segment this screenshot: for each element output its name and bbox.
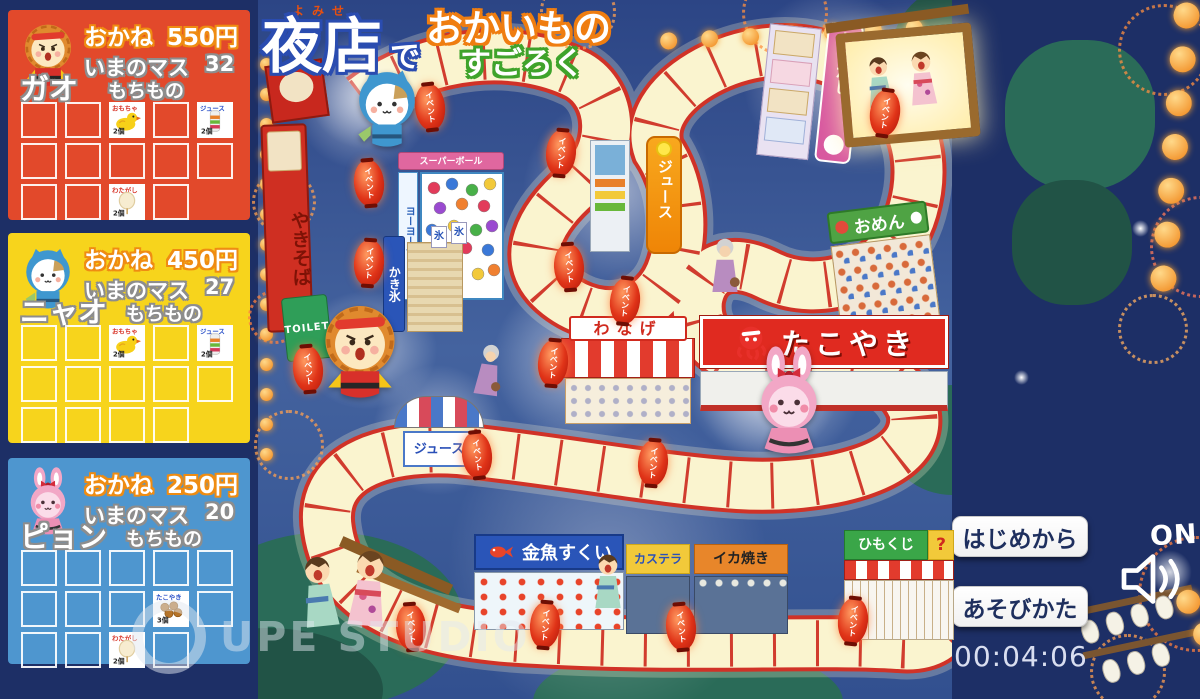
item-slot: [153, 143, 189, 179]
yukata-kid: [336, 542, 400, 643]
item-slot: [21, 632, 57, 668]
money-label: おかね: [84, 241, 153, 275]
red-mask-icon: [834, 220, 848, 234]
item-slot: [65, 366, 101, 402]
item-slot: [21, 591, 57, 627]
item-slot: [65, 407, 101, 443]
ice-flag: 氷: [451, 222, 467, 244]
belongings-grid: おもちゃ 2個 ジュース 2個: [21, 325, 233, 443]
kakigori-body: [407, 242, 463, 332]
restart-button[interactable]: はじめから: [952, 516, 1088, 557]
item-slot: [109, 550, 145, 586]
timer: 00:04:06: [954, 640, 1088, 673]
item-card-takoyaki: たこやき 3個: [153, 591, 189, 627]
speaker-icon: [1118, 550, 1188, 608]
item-slot: [21, 550, 57, 586]
yakisoba-photo: [267, 130, 302, 171]
square-value: 27: [205, 275, 234, 305]
item-slot: [197, 143, 233, 179]
player-panel-gao: おかね 550円 いまのマス 32 ガオ もちもの おもちゃ 2個 ジュース 2…: [8, 10, 250, 220]
stall-sign-omen: おめん: [852, 207, 906, 238]
ikayaki-body: [694, 576, 788, 634]
stall-sign-ikayaki: イカ焼き: [694, 544, 788, 574]
side-panel: はじめから あそびかた ON 00:04:06: [950, 0, 1200, 699]
item-slot: [153, 550, 189, 586]
square-value: 20: [205, 500, 234, 530]
yukata-kid: [588, 548, 628, 620]
item-card-juice: ジュース 2個: [197, 102, 233, 138]
item-slot: [65, 325, 101, 361]
game-title: よみせ 夜店 で おかいもの すごろく: [262, 2, 611, 81]
tree-silhouette: [1012, 180, 1132, 305]
item-slot: [197, 366, 233, 402]
item-card-juice: ジュース 2個: [197, 325, 233, 361]
app-root: おかね 550円 いまのマス 32 ガオ もちもの おもちゃ 2個 ジュース 2…: [0, 0, 1200, 699]
item-slot: [21, 325, 57, 361]
item-slot: [153, 632, 189, 668]
item-count: 2個: [201, 350, 213, 359]
item-card-cotton-candy: わたがし 2個: [109, 184, 145, 220]
belongings-grid: たこやき 3個 わたがし 2個: [21, 550, 233, 668]
item-slot: [21, 143, 57, 179]
stall-sign-castella: カステラ: [626, 544, 690, 574]
wanage-awning: [561, 338, 695, 378]
sound-state-label: ON: [1150, 519, 1199, 552]
stall-sign-superball: スーパーボール: [398, 152, 504, 170]
how-to-play-button[interactable]: あそびかた: [952, 586, 1088, 627]
item-slot: [65, 143, 101, 179]
item-slot: [109, 407, 145, 443]
item-slot: [21, 184, 57, 220]
item-count: 2個: [201, 127, 213, 136]
item-slot: [65, 632, 101, 668]
square-value: 32: [205, 52, 234, 82]
money-value: 250円: [167, 466, 238, 500]
item-count: 3個: [157, 616, 169, 625]
himokuji-awning: [844, 560, 954, 580]
item-slot: [153, 366, 189, 402]
item-slot: [65, 591, 101, 627]
belongings-label: もちもの: [126, 299, 202, 326]
item-slot: [153, 184, 189, 220]
belongings-label: もちもの: [126, 524, 202, 551]
item-slot: [65, 550, 101, 586]
stall-sign-kakigori: かき氷: [388, 266, 401, 302]
item-card-cotton-candy: わたがし 2個: [109, 632, 145, 668]
item-slot: [65, 184, 101, 220]
sound-toggle[interactable]: ON: [1118, 520, 1200, 616]
title-particle: で: [390, 32, 420, 76]
money-label: おかね: [84, 466, 153, 500]
item-slot: [197, 550, 233, 586]
lemon-icon: [656, 141, 672, 157]
himokuji-sign-board: ひもくじ ?: [844, 530, 954, 560]
goldfish-icon: [486, 542, 516, 562]
title-line2: すごろく: [460, 47, 611, 81]
player-panel-nyao: おかね 450円 いまのマス 27 ニャオ もちもの おもちゃ 2個 ジュース …: [8, 233, 250, 443]
himokuji-question-mark: ?: [928, 530, 954, 560]
money-row: おかね 450円: [84, 241, 238, 275]
stall-wanage: わなげ: [561, 316, 695, 424]
yukata-kid: [900, 46, 946, 115]
game-board: やきそば スーパーボール ヨーヨーつり かき氷: [258, 0, 952, 699]
stall-sign-himokuji: ひもくじ: [844, 530, 928, 560]
item-card-toy: おもちゃ 2個: [109, 102, 145, 138]
item-count: 2個: [113, 209, 125, 218]
item-slot: [21, 366, 57, 402]
title-line1: おかいもの: [426, 10, 611, 47]
item-count: 2個: [113, 657, 125, 666]
item-slot: [21, 102, 57, 138]
item-count: 2個: [113, 127, 125, 136]
title-main: 夜店: [262, 12, 382, 82]
cotton-puff-icon: [823, 134, 845, 156]
money-label: おかね: [84, 18, 153, 52]
tree-silhouette: [1005, 40, 1155, 190]
item-slot: [109, 143, 145, 179]
item-slot: [109, 366, 145, 402]
item-slot: [197, 591, 233, 627]
item-count: 2個: [113, 350, 125, 359]
light-dot: [1014, 370, 1029, 385]
player-piece-pyon: [738, 346, 840, 464]
item-slot: [153, 407, 189, 443]
stall-ikayaki: イカ焼き: [694, 544, 788, 638]
belongings-label: もちもの: [108, 76, 184, 103]
money-value: 550円: [167, 18, 238, 52]
money-row: おかね 550円: [84, 18, 238, 52]
item-slot: [153, 102, 189, 138]
granny-figure: [704, 236, 746, 306]
goal-gate: [835, 22, 980, 147]
ice-flag: 氷: [431, 226, 447, 248]
vending-machine: [590, 140, 630, 252]
belongings-grid: おもちゃ 2個 ジュース 2個 わたがし 2個: [21, 102, 233, 220]
item-slot: [21, 407, 57, 443]
white-mask-icon: [910, 211, 922, 224]
light-dot: [1132, 220, 1149, 237]
money-value: 450円: [167, 241, 238, 275]
item-card-toy: おもちゃ 2個: [109, 325, 145, 361]
wanage-prizes: [565, 378, 691, 424]
stall-juice-stand: ジュース: [590, 136, 682, 256]
firework: [1118, 294, 1188, 364]
item-slot: [109, 591, 145, 627]
lantern-string-right: [1149, 1, 1200, 292]
money-row: おかね 250円: [84, 466, 238, 500]
stall-sign-juice: ジュース: [656, 159, 672, 219]
item-slot: [65, 102, 101, 138]
item-slot: [153, 325, 189, 361]
juice-sign-board: ジュース: [646, 136, 682, 254]
player-panel-pyon: おかね 250円 いまのマス 20 ピョン もちもの たこやき 3個: [8, 458, 250, 664]
player-piece-gao: [312, 300, 408, 406]
